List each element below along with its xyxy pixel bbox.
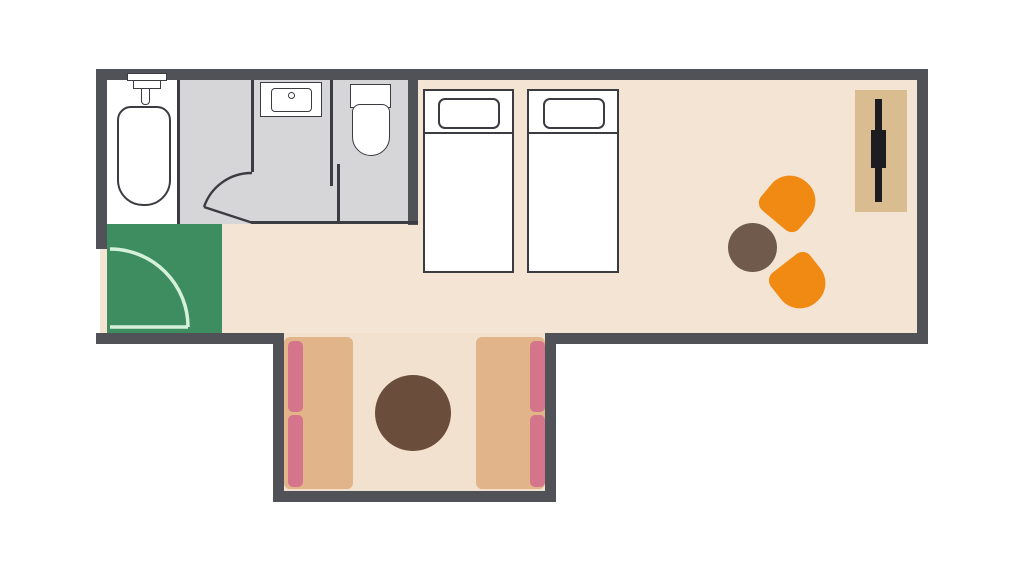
single-bed-icon (527, 89, 619, 273)
wall-alcove-bottom (273, 491, 556, 502)
wall-alcove-left (273, 333, 284, 502)
floor-plan (0, 0, 1024, 575)
wall-bottom-left (96, 333, 284, 344)
seat-cushion-icon (530, 415, 545, 487)
partition-washroom-door-wall (251, 80, 254, 172)
bathtub-icon (117, 106, 171, 206)
sliding-door-icon (337, 164, 340, 224)
single-bed-icon (423, 89, 514, 273)
bed-sheet-line (425, 132, 512, 134)
pillow-icon (438, 98, 500, 129)
shower-faucet-icon (141, 88, 150, 105)
seat-cushion-icon (530, 341, 545, 412)
wall-right (917, 69, 928, 344)
washbasin-faucet-dot-icon (288, 92, 295, 99)
wall-top (96, 69, 928, 80)
room-entry-floor (107, 224, 222, 333)
round-table-icon (728, 223, 777, 272)
seat-cushion-icon (288, 341, 303, 412)
wall-left (96, 69, 107, 249)
round-table-icon (375, 375, 451, 451)
seat-cushion-icon (288, 415, 303, 487)
wall-alcove-right (545, 333, 556, 502)
partition-bathtub-washroom (177, 80, 180, 224)
sliding-door-icon (330, 80, 333, 186)
pillow-icon (543, 98, 605, 129)
wall-bath-bedroom-divider (408, 69, 418, 225)
wall-bottom-right (545, 333, 928, 344)
bathroom-threshold-line (251, 221, 418, 224)
toilet-icon (352, 104, 390, 156)
bed-sheet-line (529, 132, 617, 134)
tv-icon (871, 130, 886, 168)
